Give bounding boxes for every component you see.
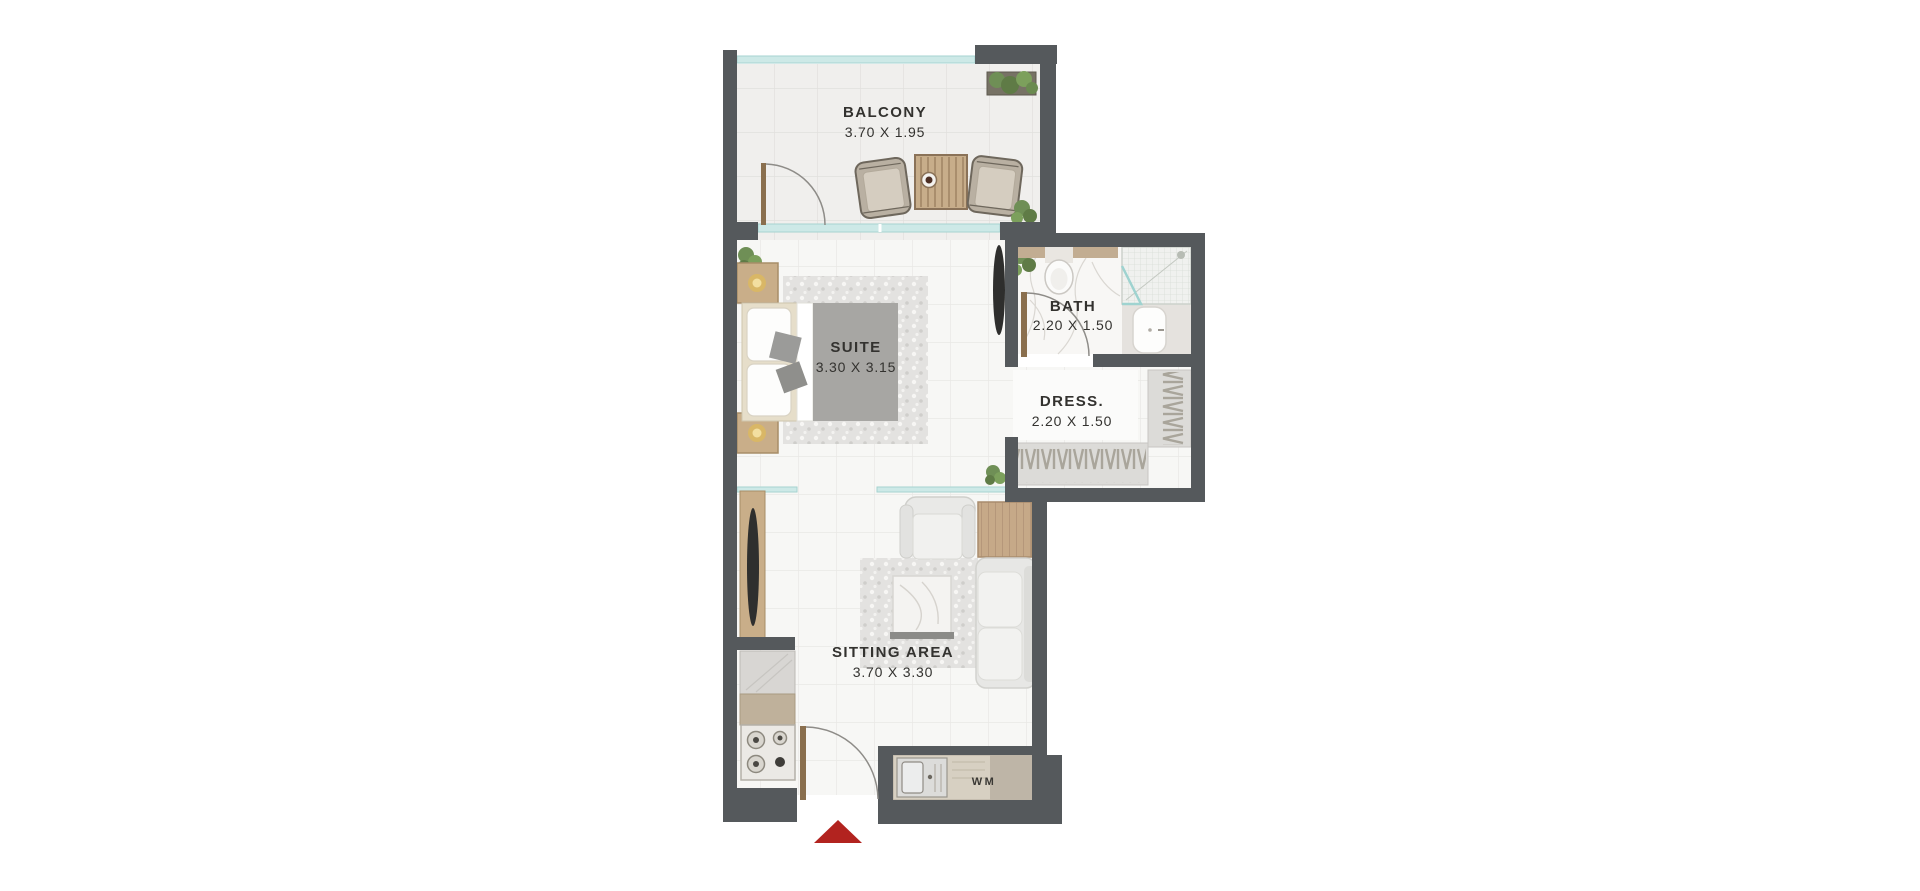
- bath-door-leaf: [1021, 292, 1027, 357]
- wall-left: [723, 50, 737, 800]
- wall-kitchen-stub: [723, 637, 795, 650]
- wall-balcony-stub-left: [737, 222, 758, 240]
- tv-console: [740, 491, 765, 639]
- dress-dims: 2.20 X 1.50: [1032, 413, 1112, 429]
- stove: [741, 725, 795, 780]
- balcony-railing-glass: [737, 56, 975, 63]
- bath-dims: 2.20 X 1.50: [1033, 317, 1113, 333]
- kitchen-sink: [897, 758, 947, 797]
- sheet-fold: [797, 303, 813, 421]
- suite-dims: 3.30 X 3.15: [816, 359, 896, 375]
- dress-label: DRESS.: [1040, 393, 1104, 410]
- kitchen-counter: [740, 694, 795, 725]
- wall-bath-top: [1005, 233, 1205, 247]
- laundry-counter: WM: [893, 755, 1032, 800]
- floor-plan-page: SUITE 3.30 X 3.15 BATH 2.20 X 1.50: [0, 0, 1920, 891]
- planter-box: [987, 71, 1038, 95]
- balcony-table: [915, 155, 967, 209]
- balcony-door-leaf: [761, 163, 766, 225]
- sitting-area-dims: 3.70 X 3.30: [853, 664, 933, 680]
- wall-bottom-right: [878, 800, 1062, 824]
- nightstand-top: [737, 263, 778, 303]
- side-table: [978, 502, 1032, 557]
- wall-right-outer: [1191, 233, 1205, 502]
- wall-bath-dress-divider: [1093, 354, 1191, 367]
- bath-label: BATH: [1050, 298, 1096, 315]
- wall-bath-left: [1005, 233, 1018, 367]
- floor-plan: SUITE 3.30 X 3.15 BATH 2.20 X 1.50: [0, 0, 1920, 891]
- wardrobe-bottom: [1013, 443, 1148, 485]
- wall-sitting-right: [1032, 496, 1047, 764]
- wall-bottom-left: [723, 788, 797, 822]
- kitchen: [740, 651, 795, 780]
- suite-tv: [993, 245, 1005, 335]
- shower: [1122, 247, 1191, 304]
- entry-door-leaf: [800, 726, 806, 800]
- wall-wm-step: [1032, 755, 1062, 800]
- balcony-chair-left: [854, 157, 911, 219]
- wardrobe-right: [1148, 370, 1191, 447]
- sofa: [976, 558, 1036, 688]
- entry-arrow-icon: [814, 820, 862, 843]
- washing-machine-label: WM: [972, 776, 997, 788]
- balcony-dims: 3.70 X 1.95: [845, 124, 925, 140]
- balcony-label: BALCONY: [843, 104, 927, 121]
- bath-sink: [1133, 307, 1166, 353]
- sitting-area-label: SITTING AREA: [832, 644, 954, 661]
- washing-machine: [990, 755, 1032, 800]
- sitting-tv: [747, 508, 759, 626]
- wall-wm-top: [878, 746, 1032, 755]
- coffee-table: [890, 576, 954, 639]
- suite-label: SUITE: [830, 339, 881, 356]
- suite-partition-glass-right: [877, 487, 1007, 492]
- shower-head-icon: [1177, 251, 1185, 259]
- wall-balcony-right: [1040, 45, 1056, 240]
- armchair: [900, 497, 975, 559]
- toilet: [1045, 247, 1073, 294]
